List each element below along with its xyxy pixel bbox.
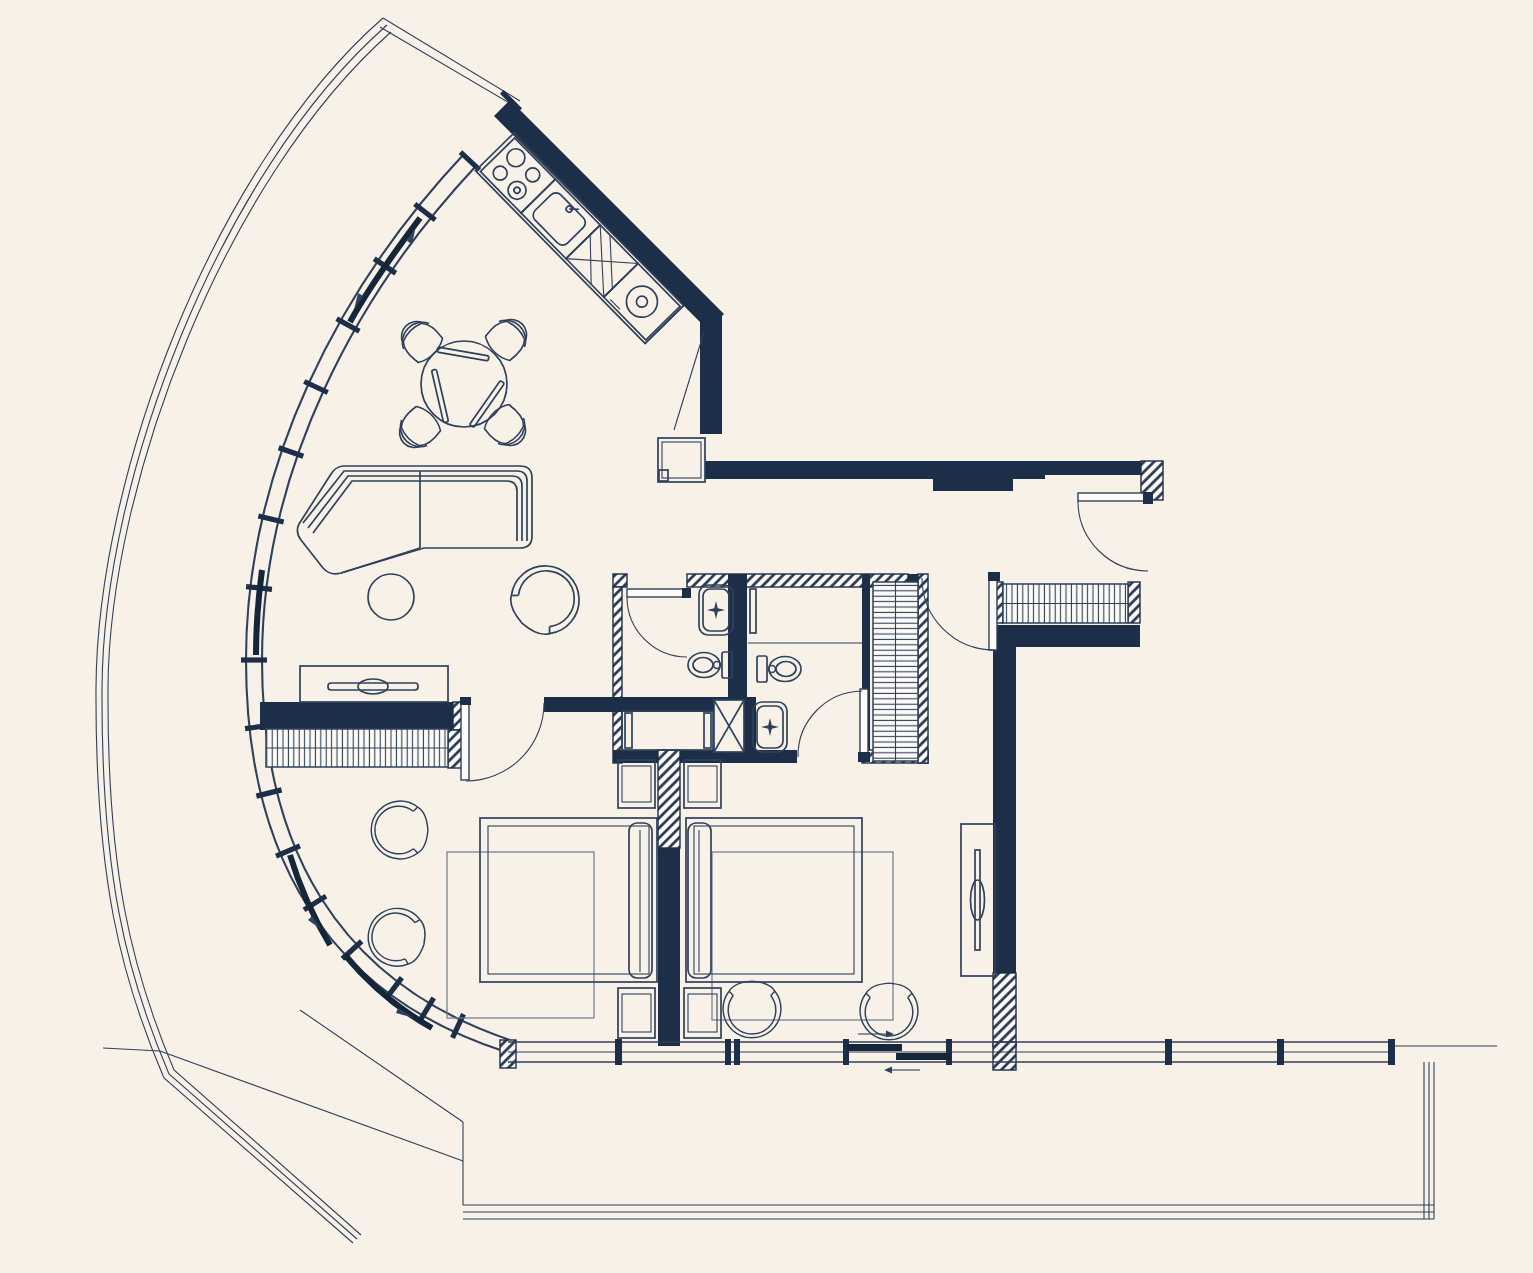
shower-2-panel [750,589,756,633]
floor-plan-page [0,0,1533,1273]
entry-wardrobe [1003,584,1128,623]
wardrobe-bedroom-1 [266,729,448,767]
rug-1 [447,852,594,1018]
armchair [498,552,593,647]
shower-1 [622,711,713,750]
service-duct [714,700,744,752]
wall-bedroom-partition [658,848,680,1046]
dining-chair [391,402,444,455]
wall-bath-divider [728,574,747,700]
terrace-outline [96,18,1497,1243]
toilet-2 [757,656,801,682]
basin-1 [699,585,733,635]
bedroom-2-chair [860,983,918,1040]
wall-living-bedroom1 [260,702,453,730]
floor-plan-canvas [0,0,1533,1273]
fridge [658,438,705,482]
nightstand [618,988,655,1038]
wall-east-post [993,973,1016,1046]
wall-east [993,647,1016,973]
wall-kitchen-diagonal [494,100,724,330]
ottoman [368,574,414,620]
tv-console [300,666,448,702]
dining-chair [393,313,446,366]
bedroom-2-chair [723,981,781,1038]
window-wall-south [508,1031,1395,1074]
kitchen [475,133,683,343]
kitchen-counter [475,133,683,343]
sofa [297,466,532,574]
wall-entry-south [991,625,1140,647]
wall-bedroom-partition-hatch [658,750,680,848]
rug-2 [712,852,893,1020]
nightstand [618,760,655,808]
basin-2 [753,702,787,752]
facade-mullions [241,150,481,1039]
nightstand [684,988,721,1038]
bedroom-2-door [922,572,1000,650]
bathroom-2 [748,589,862,752]
bed-1 [480,818,657,982]
bathroom-1-door [627,588,691,657]
sliding-window-rails [256,218,432,1028]
entry-door [1078,492,1153,571]
wall-above-entry-door [1045,461,1141,475]
bathroom-2-door [798,689,870,762]
dining-set [391,311,535,456]
bedroom-1-chair [362,902,432,972]
bedroom-2 [684,760,995,1040]
tall-cabinet [961,824,995,976]
curved-glass-facade [241,150,510,1052]
bedroom-1-door [460,697,544,781]
nightstand [684,760,721,808]
wall-hall-north [705,461,1045,479]
bedroom-1-chair [371,801,428,859]
dining-chair [480,400,533,453]
toilet-1 [688,652,732,678]
wall-bath-west [613,587,622,763]
bedroom-1 [362,760,657,1038]
wardrobe-bedroom-2 [873,582,918,761]
wall-bath-north-left [613,574,627,587]
